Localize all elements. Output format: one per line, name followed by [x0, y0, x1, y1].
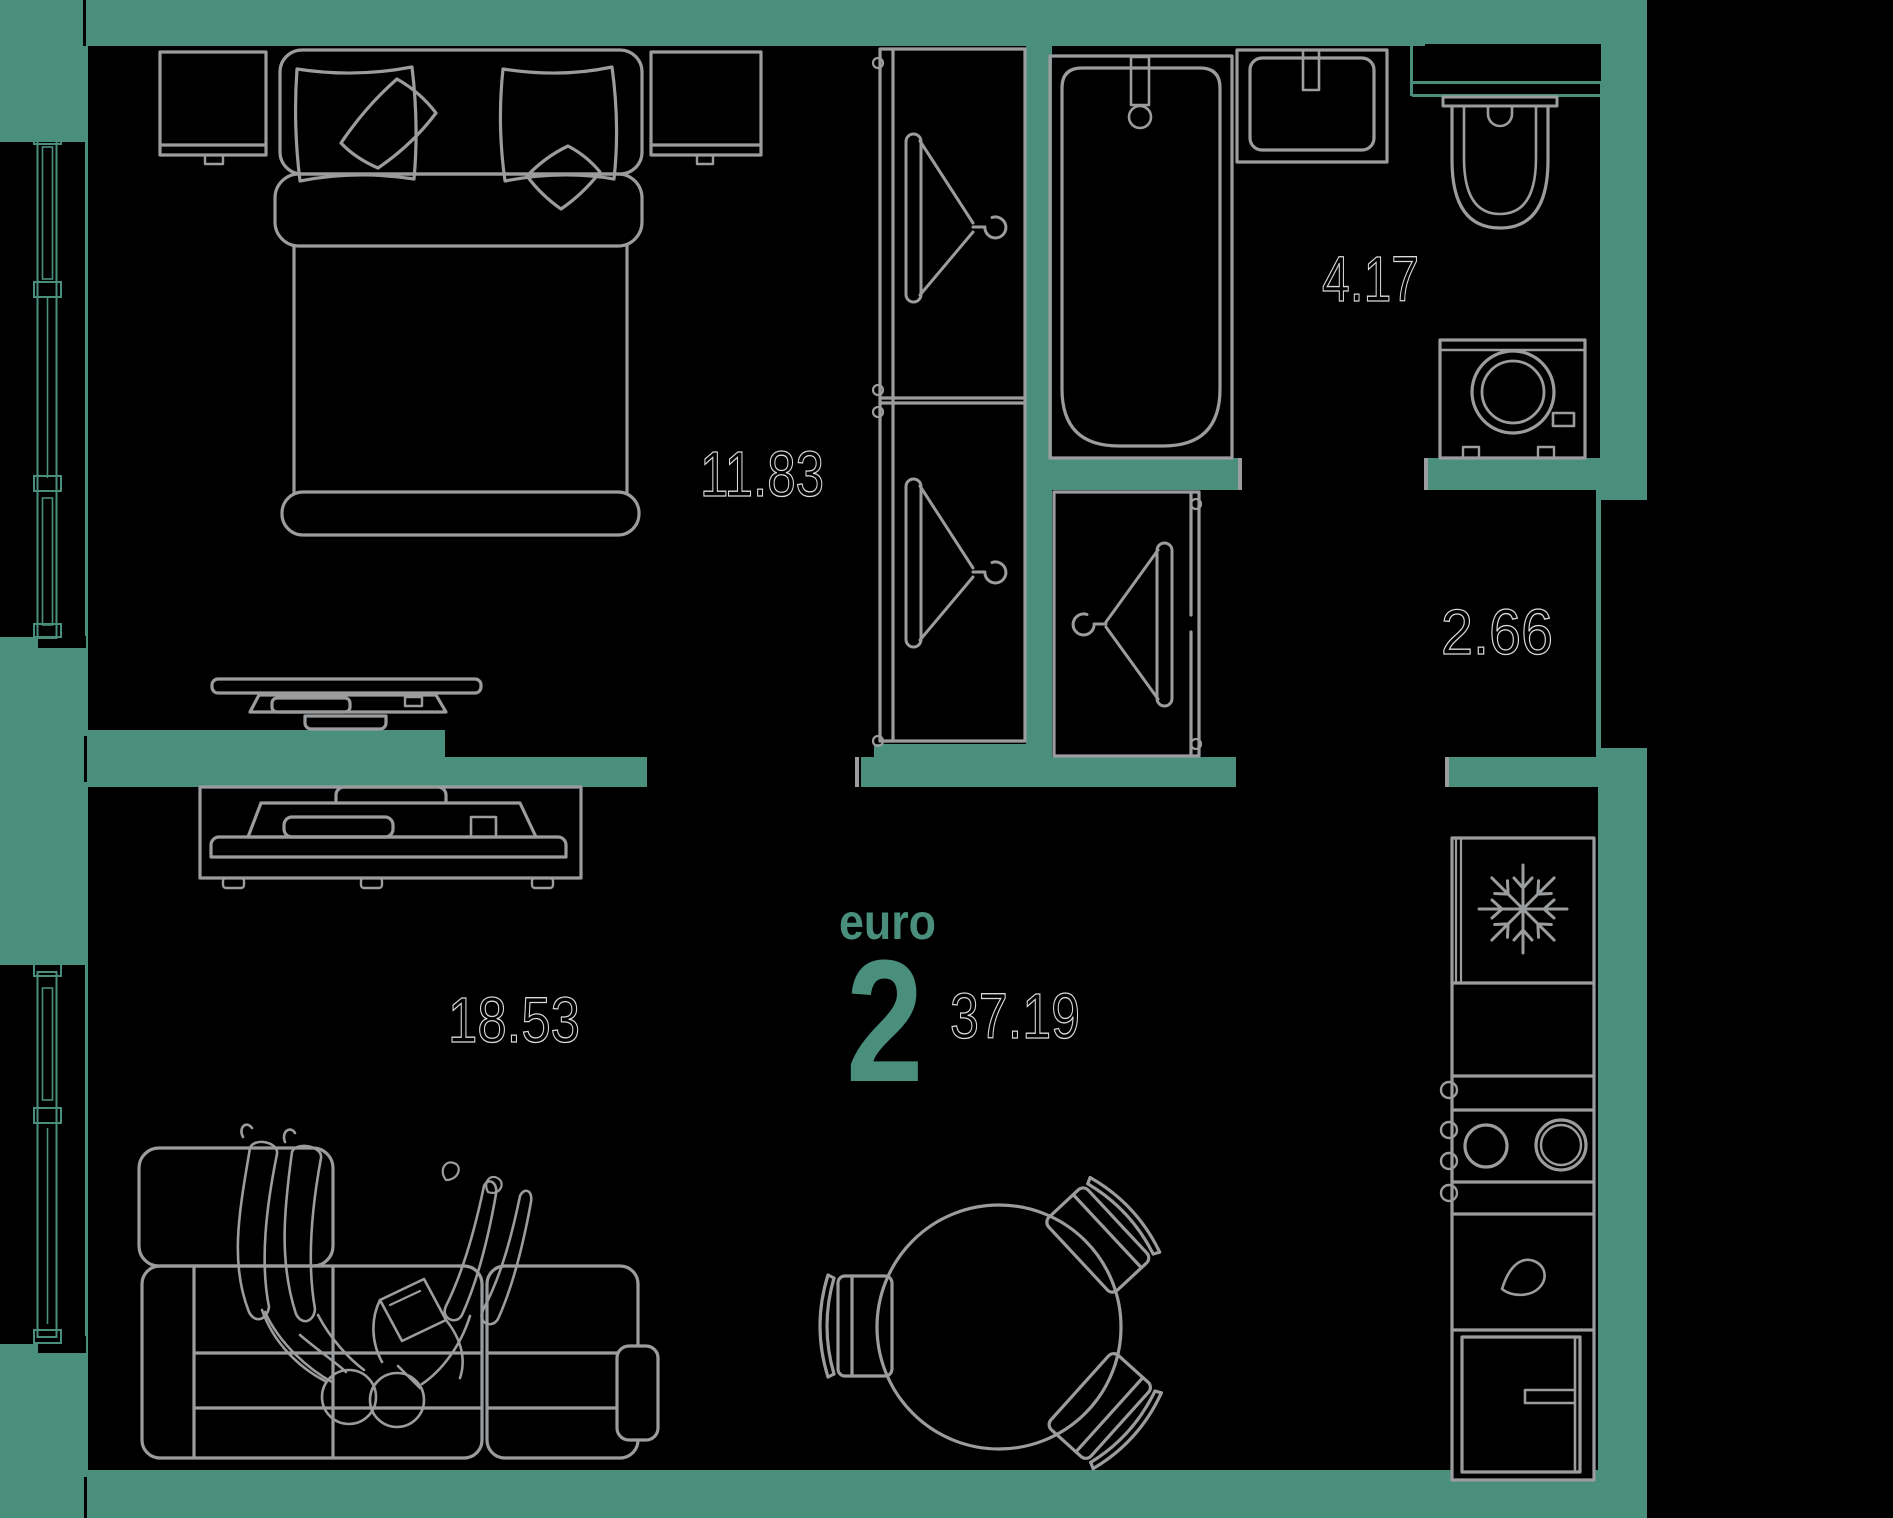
svg-text:2: 2: [846, 924, 923, 1118]
svg-text:11.83: 11.83: [700, 438, 824, 510]
svg-text:2.66: 2.66: [1441, 596, 1553, 668]
svg-text:4.17: 4.17: [1322, 243, 1419, 315]
svg-text:37.19: 37.19: [950, 980, 1080, 1052]
svg-text:18.53: 18.53: [448, 984, 580, 1056]
